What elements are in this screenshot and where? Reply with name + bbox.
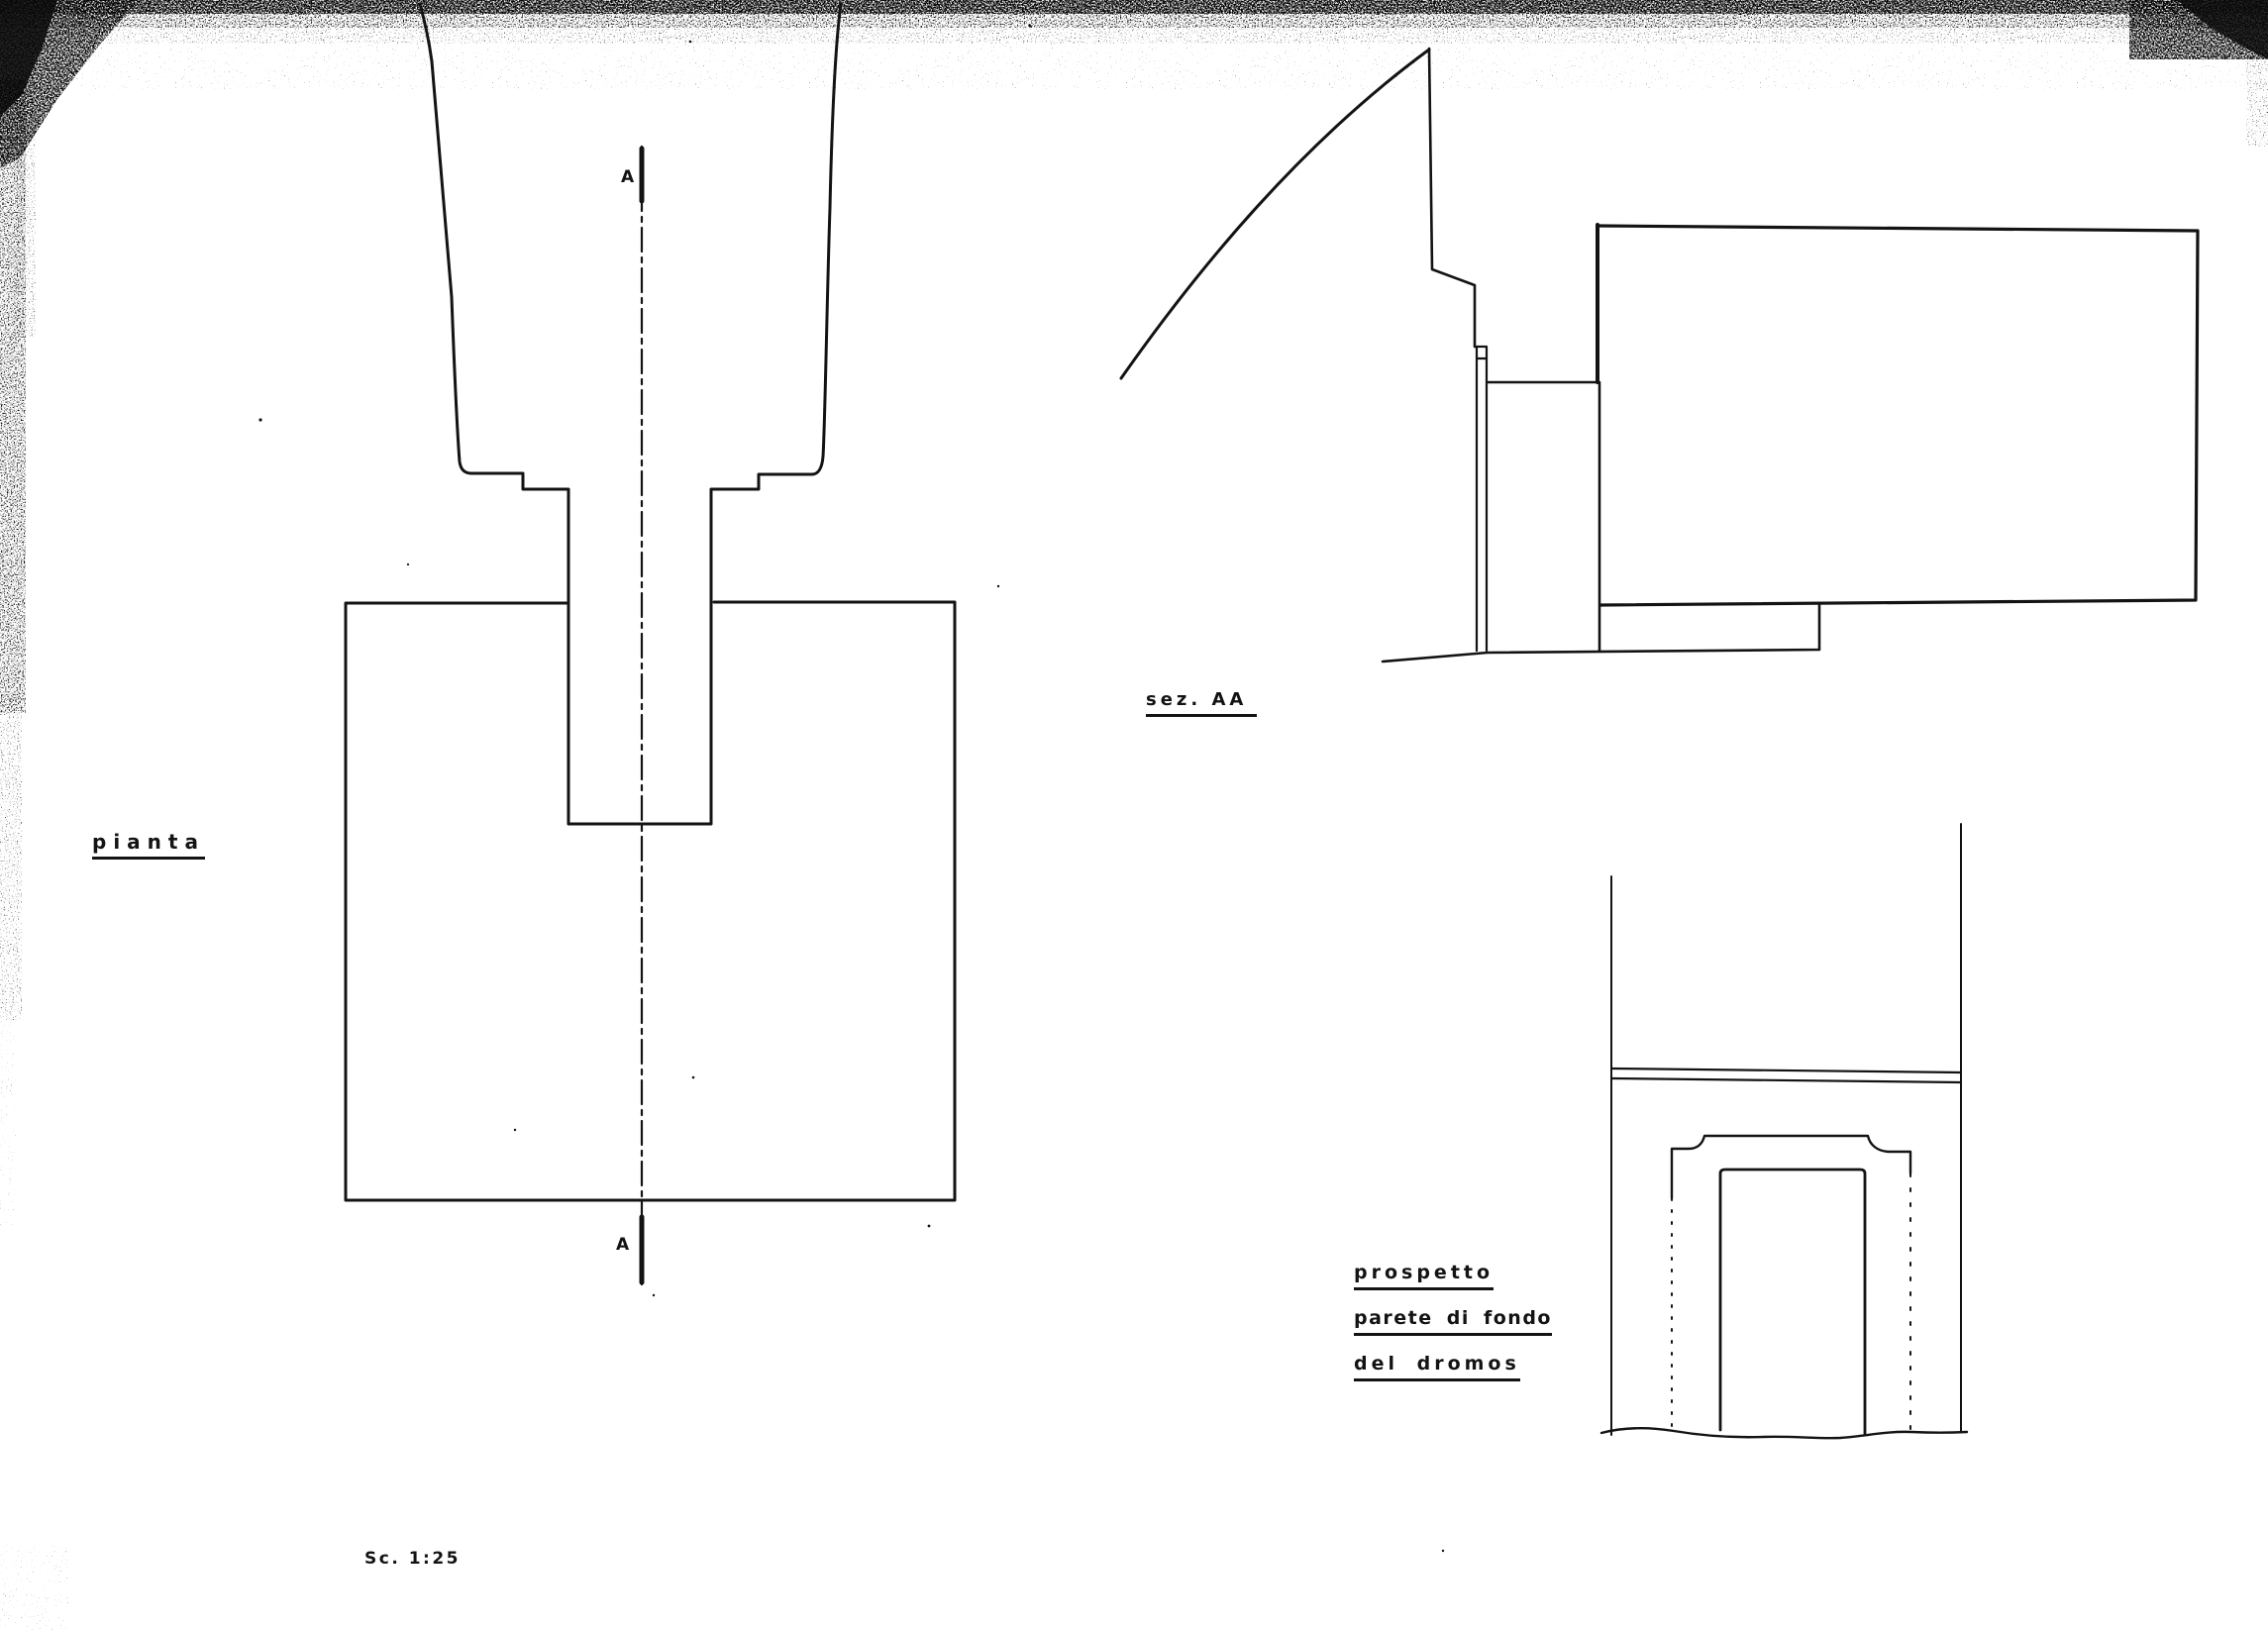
elevation-band-upper	[1611, 1069, 1961, 1072]
elevation-door-frame	[1672, 1136, 1910, 1198]
section-label: sez. AA	[1146, 691, 1257, 717]
scan-noise	[0, 0, 2268, 1630]
scan-specks	[258, 25, 1444, 1553]
section-view	[1121, 49, 2198, 662]
elevation-band-lower	[1611, 1078, 1961, 1082]
plan-view	[346, 4, 955, 1284]
section-door-slab-top	[1475, 347, 1487, 358]
drawing-sheet: pianta sez. AA prospetto parete di fondo…	[0, 0, 2268, 1630]
section-chamber-outline	[1598, 226, 2198, 605]
plan-label: pianta	[92, 832, 205, 860]
section-mound-profile	[1121, 50, 1429, 378]
section-floor-ground	[1383, 605, 1819, 662]
plan-dromos-outline	[420, 4, 841, 824]
elevation-label-line2: parete di fondo	[1354, 1309, 1552, 1336]
section-entrance-profile	[1429, 49, 1475, 347]
scale-label: Sc. 1:25	[364, 1551, 461, 1568]
plan-chamber-outline	[346, 602, 955, 1200]
elevation-view	[1601, 824, 1967, 1438]
elevation-label-line1: prospetto	[1354, 1264, 1494, 1290]
technical-drawing	[0, 0, 2268, 1630]
elevation-door-opening	[1720, 1170, 1865, 1434]
section-marker-a-top: A	[621, 169, 634, 186]
section-marker-a-bottom: A	[616, 1237, 629, 1254]
elevation-label-line3: del dromos	[1354, 1355, 1520, 1381]
elevation-ground-line	[1601, 1428, 1967, 1438]
